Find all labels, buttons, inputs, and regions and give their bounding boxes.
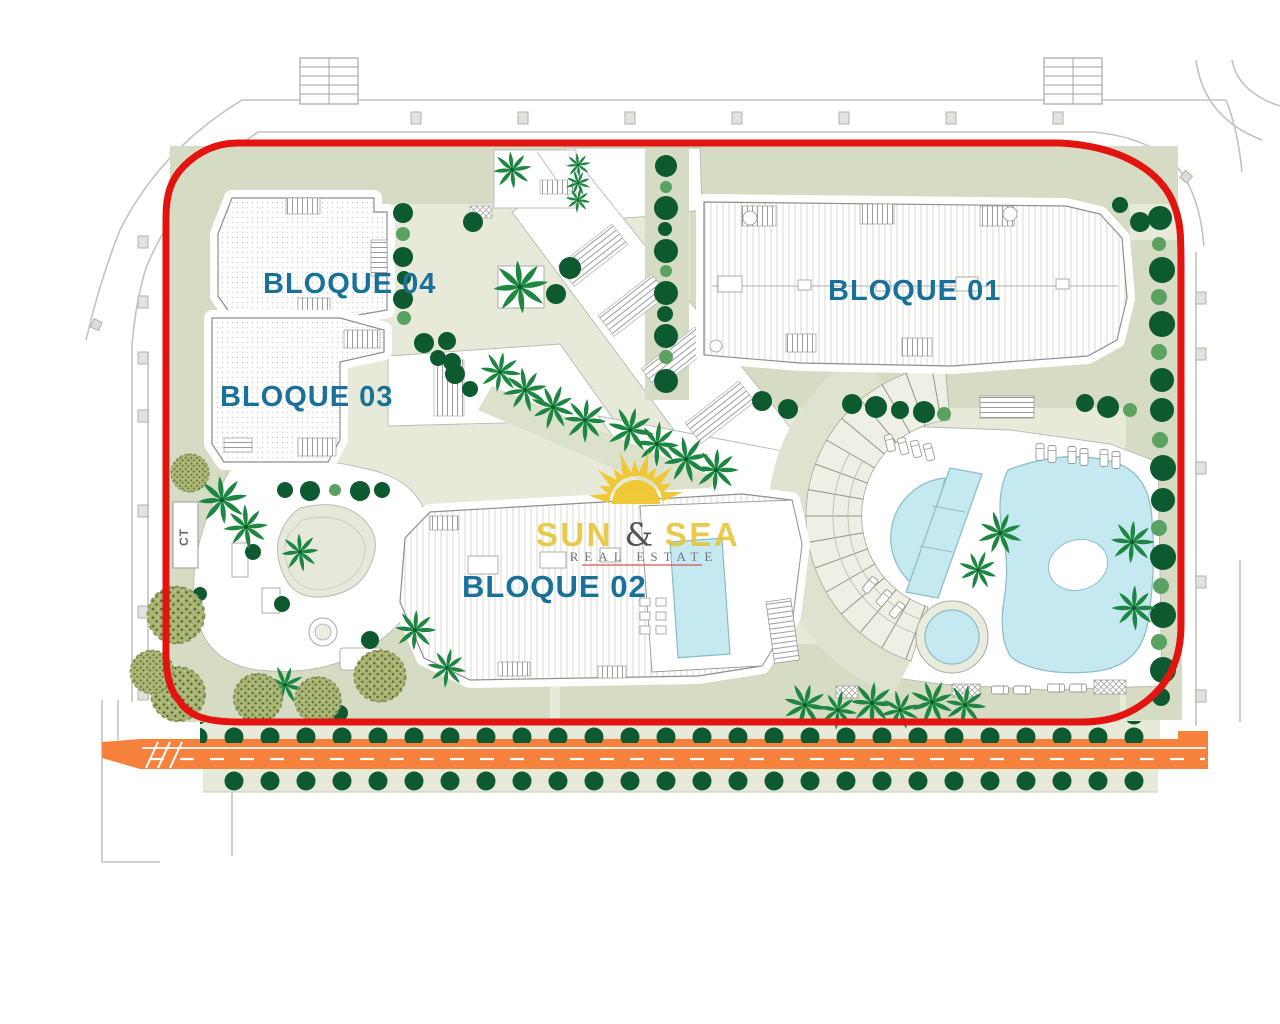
street-tree-row-lower <box>218 769 1154 791</box>
pergola <box>980 396 1034 418</box>
ct-label: CT <box>177 528 191 546</box>
bloque-01-label: BLOQUE 01 <box>828 275 1001 307</box>
site-plan: CT <box>0 0 1280 1024</box>
ct-transformer: CT <box>173 502 198 568</box>
site-plan-svg: CT <box>0 0 1280 1024</box>
bottom-avenue <box>102 718 1208 792</box>
round-pool <box>925 610 979 664</box>
bloque-04-label: BLOQUE 04 <box>263 268 436 300</box>
bloque-03-label: BLOQUE 03 <box>220 381 393 413</box>
stair-structure-top-left <box>300 58 358 104</box>
pools <box>891 457 1154 673</box>
brand-tagline: REAL ESTATE <box>570 549 719 564</box>
stair-structure-top-right <box>1044 58 1102 104</box>
bloque-02-label: BLOQUE 02 <box>462 569 647 604</box>
